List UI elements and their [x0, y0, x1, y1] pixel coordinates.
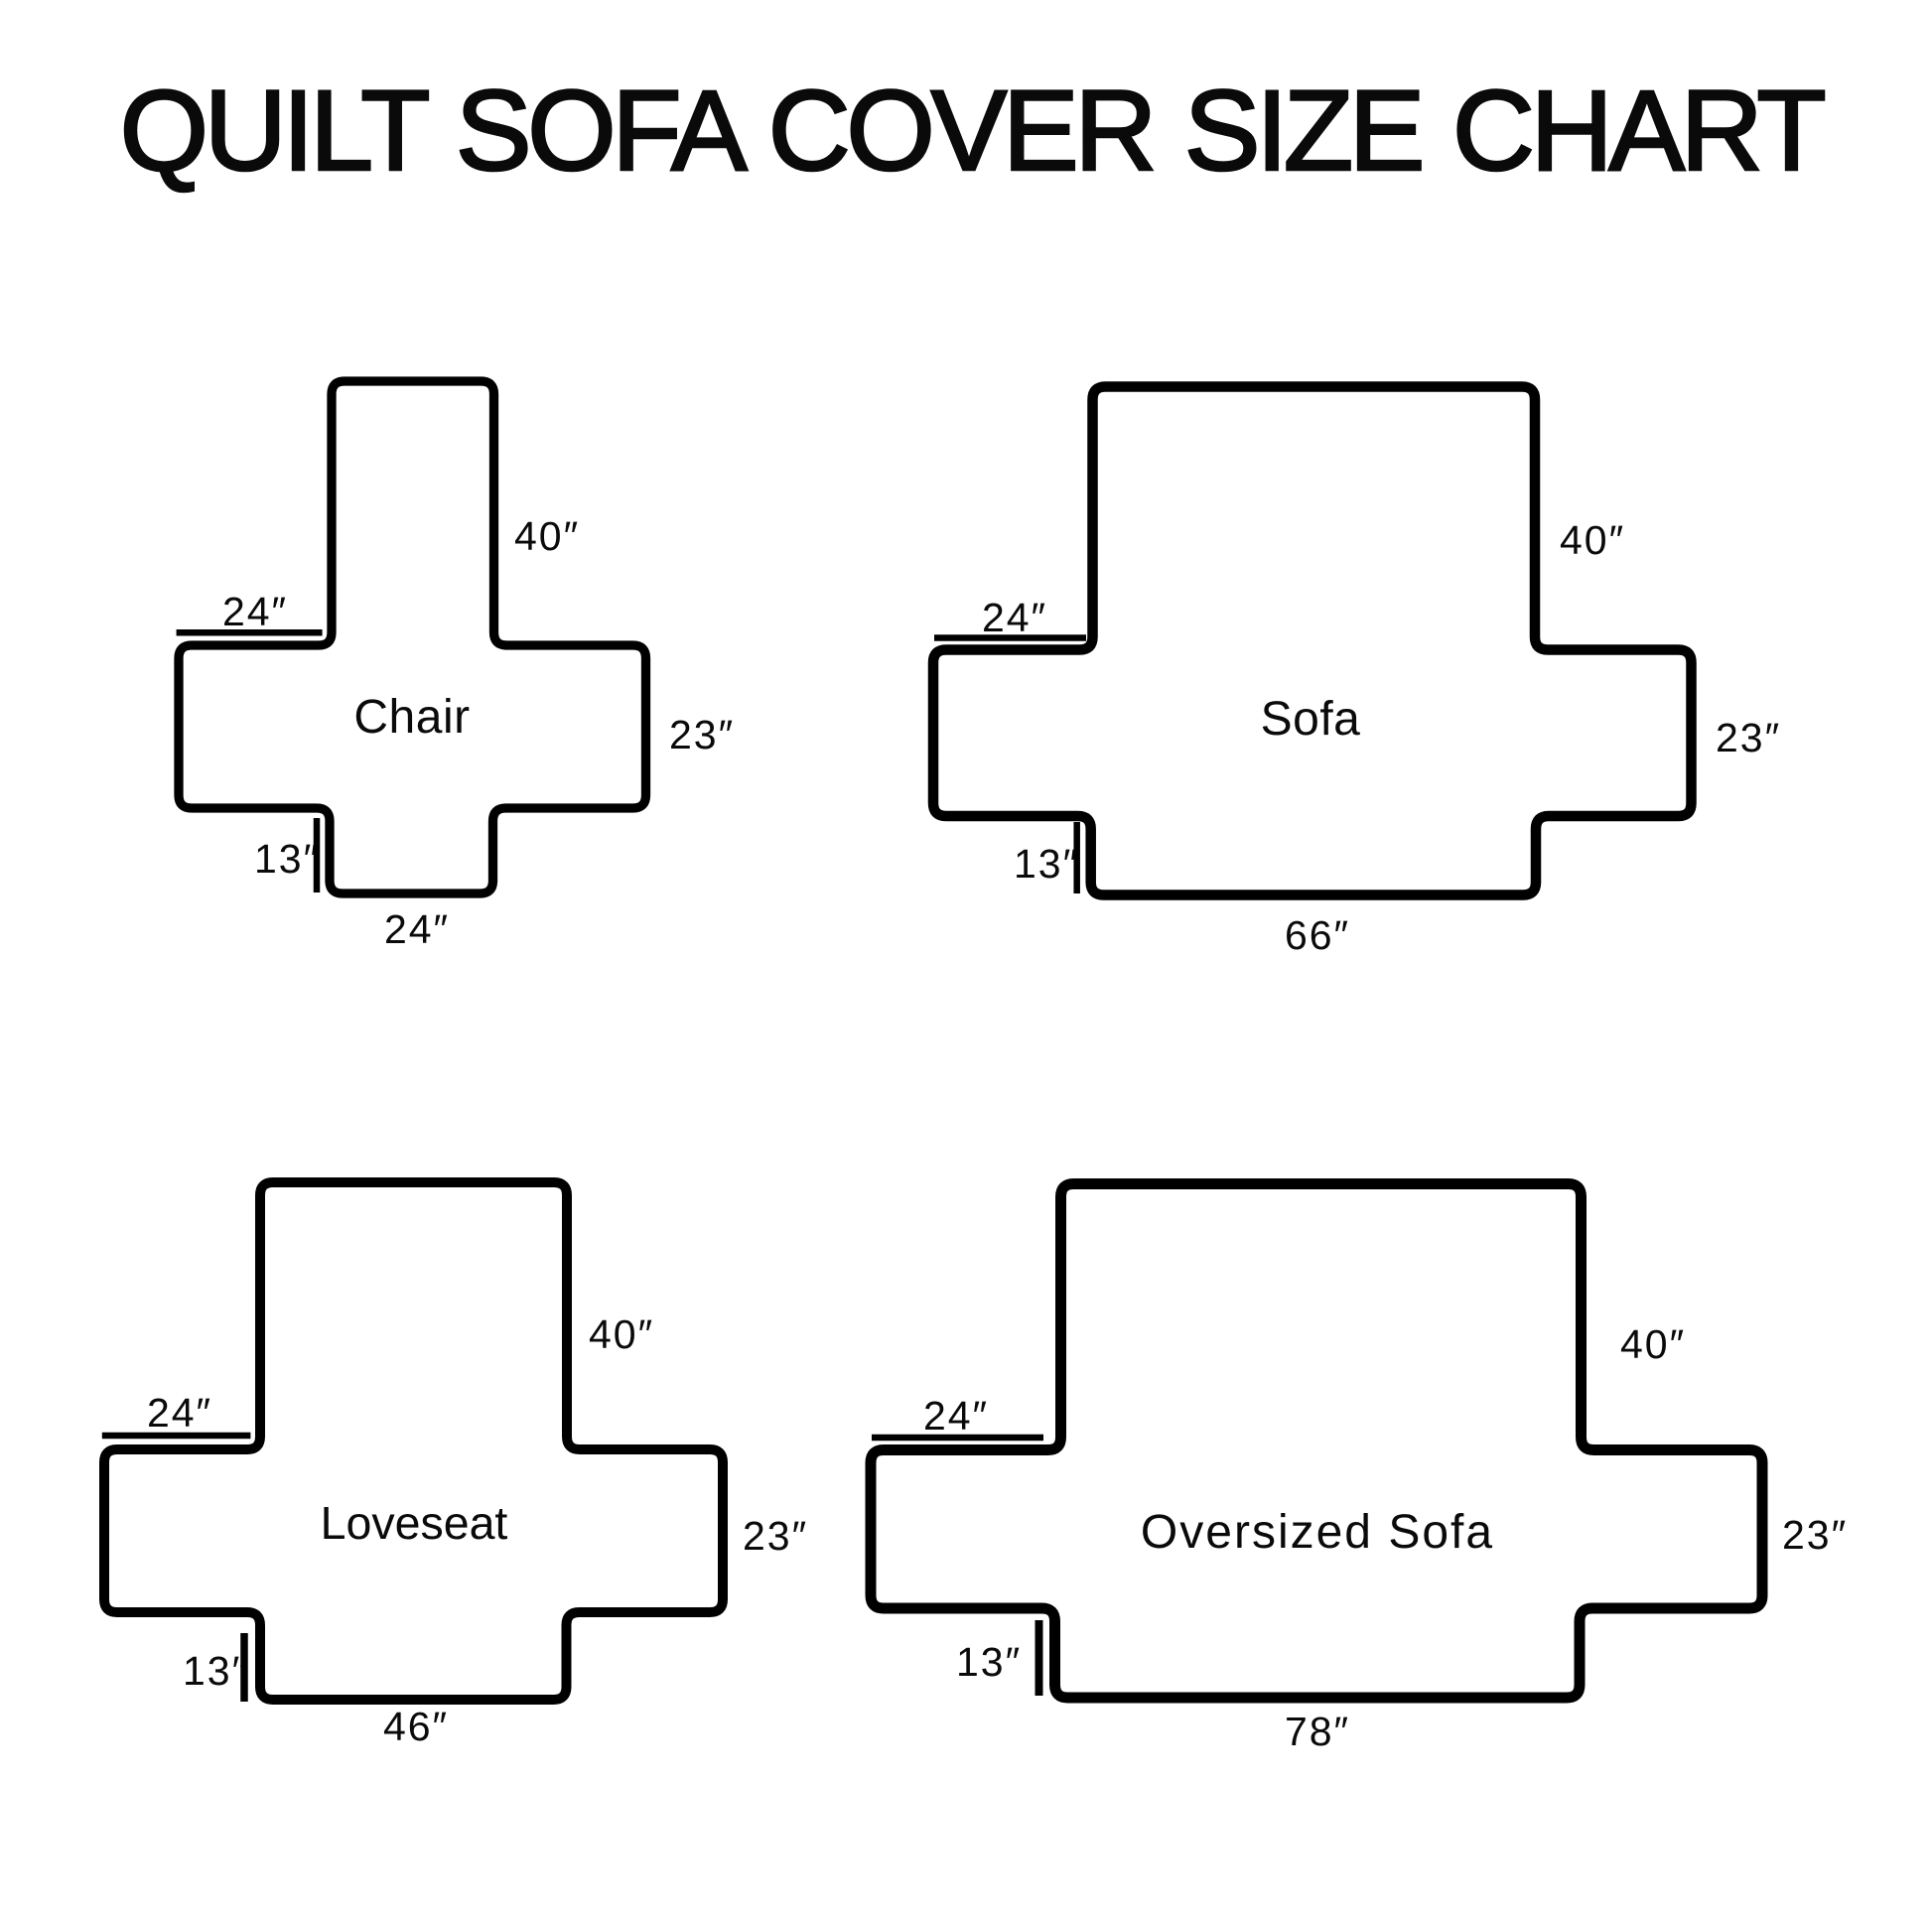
svg-text:Sofa: Sofa [1261, 693, 1361, 746]
svg-text:24″: 24″ [384, 906, 450, 952]
svg-text:24″: 24″ [923, 1393, 989, 1439]
svg-text:24″: 24″ [222, 589, 288, 634]
svg-text:13″: 13″ [1014, 841, 1079, 887]
svg-text:40″: 40″ [1560, 517, 1625, 563]
svg-text:40″: 40″ [514, 513, 580, 559]
svg-text:QUILT SOFA COVER SIZE CHART: QUILT SOFA COVER SIZE CHART [120, 68, 1825, 195]
svg-text:23″: 23″ [743, 1513, 808, 1559]
svg-text:Oversized Sofa: Oversized Sofa [1141, 1506, 1494, 1559]
svg-text:Chair: Chair [353, 691, 470, 744]
svg-text:78″: 78″ [1285, 1709, 1350, 1754]
svg-text:13″: 13″ [183, 1648, 248, 1694]
svg-text:24″: 24″ [147, 1390, 212, 1436]
svg-text:24″: 24″ [982, 595, 1047, 640]
svg-text:23″: 23″ [669, 712, 735, 757]
svg-text:66″: 66″ [1285, 912, 1350, 958]
svg-text:13″: 13″ [254, 836, 320, 882]
svg-text:Loveseat: Loveseat [321, 1497, 508, 1549]
svg-text:23″: 23″ [1716, 715, 1781, 760]
svg-text:40″: 40″ [589, 1311, 654, 1357]
svg-text:23″: 23″ [1782, 1512, 1848, 1558]
svg-text:40″: 40″ [1620, 1321, 1686, 1367]
svg-text:46″: 46″ [383, 1704, 449, 1749]
svg-text:13″: 13″ [956, 1639, 1022, 1685]
